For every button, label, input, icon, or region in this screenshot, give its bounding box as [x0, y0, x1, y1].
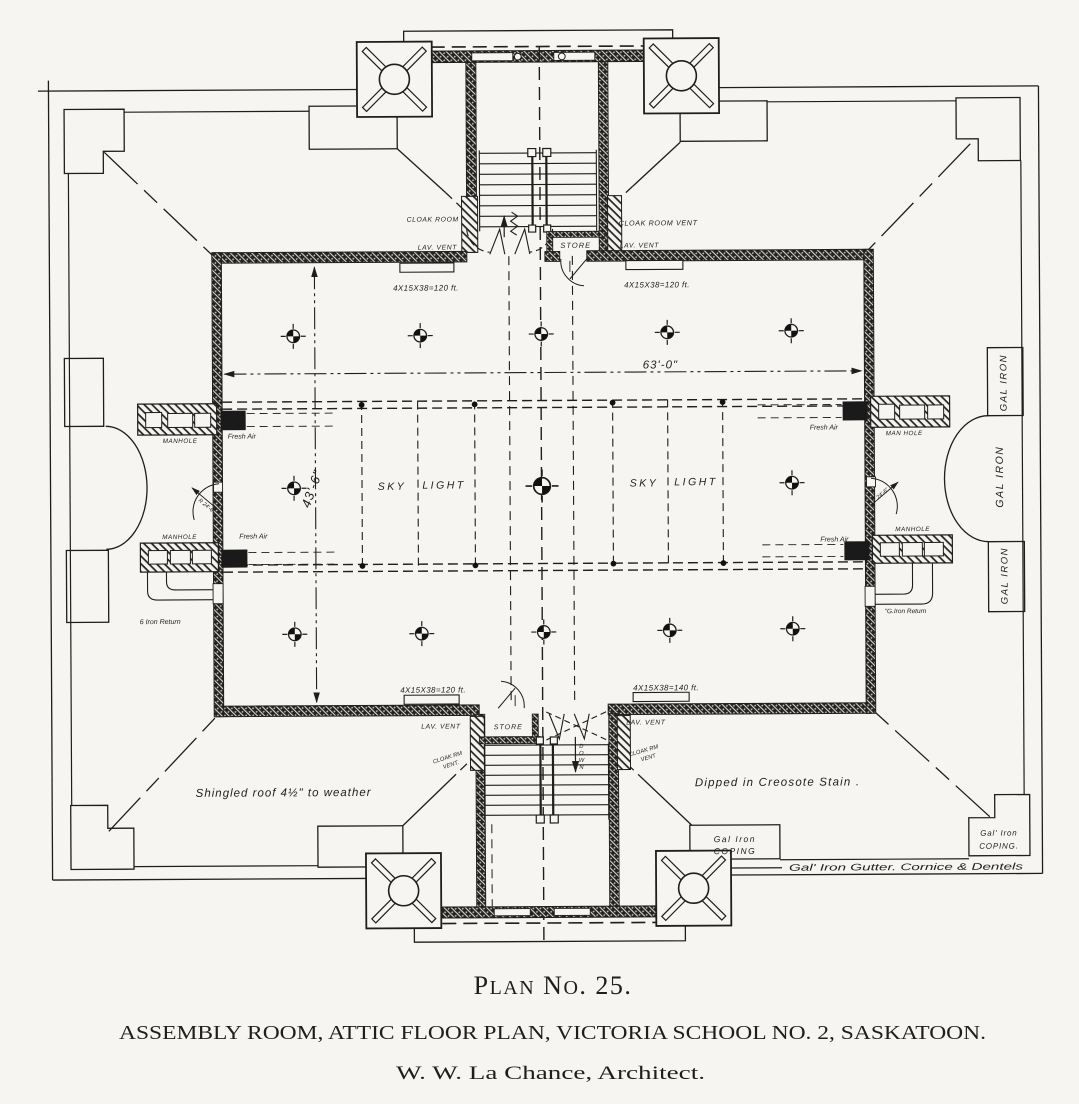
svg-text:MAN HOLE: MAN HOLE: [886, 430, 923, 437]
svg-text:LIGHT: LIGHT: [422, 479, 465, 491]
svg-text:MANHOLE: MANHOLE: [163, 438, 198, 445]
svg-text:MANHOLE: MANHOLE: [162, 534, 197, 541]
svg-text:GAL IRON: GAL IRON: [994, 446, 1006, 508]
svg-text:Dipped in Creosote Stain .: Dipped in Creosote Stain .: [695, 776, 861, 789]
svg-text:LAV. VENT: LAV. VENT: [421, 723, 461, 730]
svg-text:MANHOLE: MANHOLE: [895, 526, 930, 533]
svg-text:4X15X38=140 ft.: 4X15X38=140 ft.: [633, 683, 699, 692]
svg-text:GAL IRON: GAL IRON: [998, 354, 1009, 411]
svg-text:COPING.: COPING.: [979, 842, 1018, 851]
svg-text:4X15X38=120 ft.: 4X15X38=120 ft.: [624, 280, 690, 289]
svg-text:COPING: COPING: [714, 846, 757, 856]
svg-text:63'-0": 63'-0": [643, 359, 678, 371]
svg-text:LAV. VENT: LAV. VENT: [620, 242, 660, 249]
svg-text:Gal' Iron Gutter. Cornice & De: Gal' Iron Gutter. Cornice & Dentels: [789, 862, 1023, 874]
svg-text:Shingled roof 4½" to weather: Shingled roof 4½" to weather: [196, 787, 372, 800]
svg-text:Fresh Air: Fresh Air: [239, 533, 268, 540]
svg-text:Gal' Iron: Gal' Iron: [980, 829, 1017, 838]
svg-text:Fresh Air: Fresh Air: [810, 424, 839, 431]
svg-text:SKY: SKY: [378, 481, 407, 493]
svg-text:STORE: STORE: [494, 724, 523, 731]
svg-text:W. W. La Chance, Architect.: W. W. La Chance, Architect.: [396, 1064, 705, 1084]
svg-text:O: O: [579, 751, 584, 757]
svg-text:SKY: SKY: [630, 477, 659, 489]
svg-text:D: D: [579, 744, 583, 750]
svg-text:STORE: STORE: [560, 241, 591, 250]
svg-text:GAL IRON: GAL IRON: [999, 547, 1010, 604]
svg-text:4X15X38=120 ft.: 4X15X38=120 ft.: [400, 685, 466, 694]
svg-text:CLOAK ROOM VENT: CLOAK ROOM VENT: [619, 218, 698, 227]
svg-text:"G.Iron Return: "G.Iron Return: [885, 608, 927, 615]
svg-text:LIGHT: LIGHT: [674, 476, 717, 488]
svg-text:Gal Iron: Gal Iron: [714, 834, 756, 844]
svg-text:W: W: [579, 758, 585, 764]
svg-text:ASSEMBLY ROOM, ATTIC FLOOR PLA: ASSEMBLY ROOM, ATTIC FLOOR PLAN, VICTORI…: [119, 1022, 986, 1044]
svg-text:CLOAK ROOM: CLOAK ROOM: [407, 216, 459, 223]
svg-text:Fresh Air: Fresh Air: [228, 434, 257, 441]
svg-text:LAV. VENT: LAV. VENT: [418, 244, 458, 251]
svg-text:4X15X38=120 ft.: 4X15X38=120 ft.: [393, 283, 459, 292]
svg-text:6 Iron Return: 6 Iron Return: [140, 619, 181, 626]
svg-text:LAV. VENT: LAV. VENT: [626, 719, 666, 726]
